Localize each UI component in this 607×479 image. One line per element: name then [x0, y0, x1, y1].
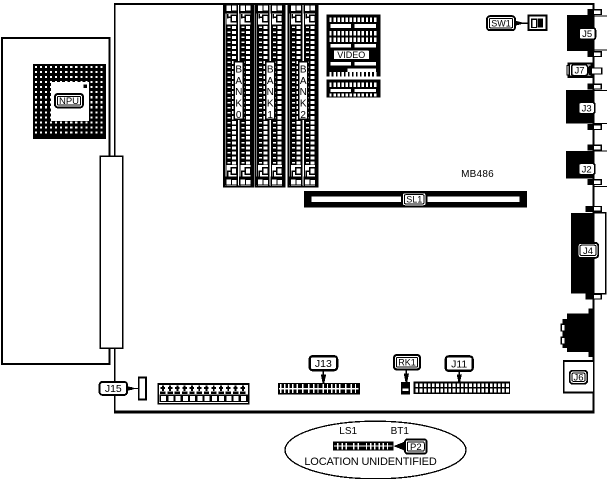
svg-text:SW1: SW1: [491, 18, 511, 28]
svg-text:B: B: [300, 64, 307, 75]
svg-text:J4: J4: [583, 246, 593, 257]
svg-text:J7: J7: [574, 66, 584, 77]
svg-text:J15: J15: [105, 383, 122, 395]
svg-text:BT1: BT1: [391, 426, 410, 437]
svg-text:2: 2: [300, 110, 306, 121]
svg-text:B: B: [235, 64, 242, 75]
svg-text:K: K: [267, 98, 274, 109]
svg-text:N: N: [267, 87, 274, 98]
svg-text:NPU: NPU: [59, 96, 79, 107]
svg-text:A: A: [267, 76, 274, 87]
svg-text:VIDEO: VIDEO: [337, 50, 365, 60]
svg-text:J3: J3: [582, 103, 592, 114]
svg-text:K: K: [235, 98, 242, 109]
svg-text:B: B: [267, 64, 274, 75]
svg-text:J5: J5: [582, 29, 592, 40]
svg-text:LOCATION UNIDENTIFIED: LOCATION UNIDENTIFIED: [304, 456, 437, 468]
svg-text:N: N: [300, 87, 307, 98]
svg-text:J13: J13: [315, 358, 332, 370]
svg-text:LS1: LS1: [339, 426, 357, 437]
svg-text:N: N: [235, 87, 242, 98]
svg-text:J6: J6: [573, 373, 583, 384]
svg-text:A: A: [235, 76, 242, 87]
svg-text:0: 0: [236, 110, 242, 121]
svg-text:A: A: [300, 76, 307, 87]
svg-text:1: 1: [267, 110, 273, 121]
svg-text:SL1: SL1: [406, 195, 422, 205]
svg-text:RK1: RK1: [398, 357, 416, 367]
svg-text:K: K: [300, 98, 307, 109]
svg-text:J2: J2: [582, 164, 592, 175]
svg-text:MB486: MB486: [461, 169, 494, 180]
svg-text:J11: J11: [451, 358, 467, 370]
svg-text:P2: P2: [410, 442, 422, 453]
